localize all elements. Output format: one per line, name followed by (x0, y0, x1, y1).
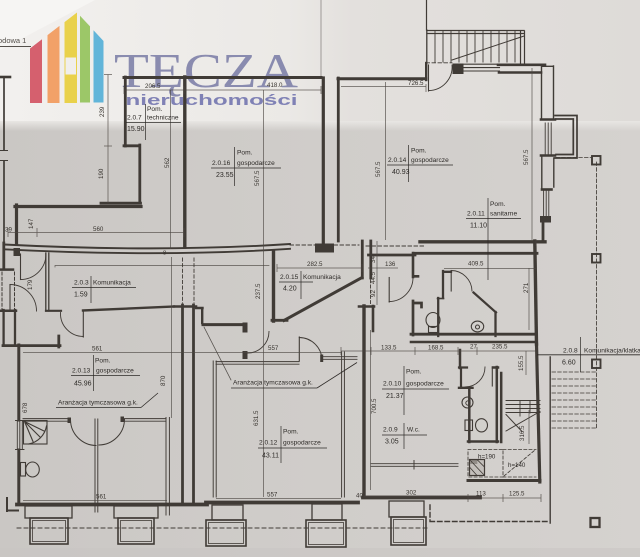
svg-text:Pom.: Pom. (283, 429, 299, 436)
svg-text:92: 92 (370, 290, 377, 297)
svg-text:2.0.3: 2.0.3 (74, 280, 89, 287)
svg-text:2.0.10: 2.0.10 (383, 381, 402, 388)
svg-text:567.5: 567.5 (375, 161, 382, 177)
svg-text:179: 179 (27, 279, 34, 290)
svg-text:odowa 1: odowa 1 (0, 36, 26, 45)
svg-text:2.0.9: 2.0.9 (383, 427, 398, 434)
svg-text:237.5: 237.5 (255, 283, 262, 299)
svg-text:409.5: 409.5 (468, 261, 484, 268)
svg-text:155.5: 155.5 (518, 355, 525, 371)
svg-text:Aranżacja tymczasowa g.k.: Aranżacja tymczasowa g.k. (58, 400, 138, 407)
svg-text:2.0.15: 2.0.15 (280, 274, 299, 281)
svg-text:190: 190 (98, 168, 105, 179)
svg-text:133.5: 133.5 (381, 345, 397, 352)
svg-text:techniczne: techniczne (147, 115, 179, 122)
svg-text:136: 136 (385, 261, 396, 268)
svg-text:557: 557 (268, 345, 279, 352)
svg-text:40.93: 40.93 (392, 169, 410, 176)
svg-text:147: 147 (28, 218, 35, 229)
svg-text:8: 8 (163, 251, 166, 257)
svg-text:11.10: 11.10 (470, 223, 487, 230)
svg-text:561: 561 (96, 494, 107, 501)
svg-text:44.5: 44.5 (370, 271, 377, 284)
svg-text:560: 560 (93, 226, 104, 233)
svg-text:2.0.14: 2.0.14 (388, 157, 407, 164)
svg-text:271: 271 (523, 282, 530, 293)
svg-text:45.96: 45.96 (74, 381, 92, 388)
svg-text:2.0.7: 2.0.7 (127, 115, 142, 122)
svg-text:316.5: 316.5 (519, 425, 526, 441)
svg-text:302: 302 (406, 490, 417, 497)
svg-text:239: 239 (99, 106, 106, 117)
svg-text:113: 113 (476, 491, 486, 498)
svg-text:W.c.: W.c. (407, 427, 420, 434)
svg-text:168.5: 168.5 (428, 345, 444, 352)
svg-text:3.05: 3.05 (385, 439, 399, 446)
svg-text:567.5: 567.5 (523, 149, 530, 165)
svg-text:gospodarcze: gospodarcze (406, 381, 444, 388)
svg-text:2.0.11: 2.0.11 (467, 211, 485, 218)
svg-text:700.5: 700.5 (371, 398, 378, 414)
svg-text:gospodarcze: gospodarcze (283, 440, 321, 447)
svg-text:gospodarcze: gospodarcze (96, 368, 134, 375)
svg-text:Komunikacja/klatka: Komunikacja/klatka (584, 348, 640, 355)
svg-text:Pom.: Pom. (490, 201, 506, 208)
svg-text:561: 561 (92, 346, 103, 353)
svg-text:gospodarcze: gospodarcze (411, 157, 449, 164)
svg-text:40: 40 (356, 493, 363, 500)
svg-text:206.5: 206.5 (145, 83, 161, 90)
svg-text:Pom.: Pom. (411, 148, 427, 155)
svg-text:567.5: 567.5 (254, 170, 261, 186)
svg-text:Komunikacja: Komunikacja (303, 274, 341, 281)
svg-text:Pom.: Pom. (95, 358, 111, 365)
svg-text:h=190: h=190 (478, 454, 496, 461)
svg-text:23.55: 23.55 (216, 172, 234, 179)
svg-text:1.59: 1.59 (74, 292, 88, 299)
svg-text:562: 562 (164, 157, 171, 168)
svg-text:39: 39 (5, 227, 12, 234)
svg-text:h=140: h=140 (508, 462, 526, 469)
svg-text:726.5: 726.5 (408, 80, 424, 87)
svg-text:43.11: 43.11 (262, 453, 279, 460)
svg-text:418.0: 418.0 (267, 82, 283, 89)
svg-text:631.5: 631.5 (253, 410, 260, 426)
svg-text:2.0.16: 2.0.16 (212, 160, 231, 167)
svg-text:2.0.12: 2.0.12 (259, 440, 278, 447)
svg-text:34: 34 (370, 256, 377, 263)
svg-text:2.0.8: 2.0.8 (563, 348, 578, 355)
svg-text:Komunikacja: Komunikacja (93, 280, 131, 287)
svg-text:125.5: 125.5 (509, 491, 525, 498)
svg-text:Pom.: Pom. (237, 150, 253, 157)
svg-text:27: 27 (470, 344, 477, 351)
svg-text:gospodarcze: gospodarcze (237, 160, 275, 167)
svg-text:Pom.: Pom. (406, 369, 422, 376)
svg-text:Aranżacja tymczasowa g.k.: Aranżacja tymczasowa g.k. (233, 380, 313, 387)
svg-text:678: 678 (22, 402, 29, 413)
svg-text:6.60: 6.60 (562, 360, 576, 367)
svg-text:4.20: 4.20 (283, 286, 297, 293)
svg-text:Pom.: Pom. (147, 106, 163, 113)
svg-text:21.37: 21.37 (386, 393, 404, 400)
svg-text:870: 870 (160, 375, 167, 386)
svg-text:282.5: 282.5 (307, 261, 323, 268)
svg-text:2.0.13: 2.0.13 (72, 368, 91, 375)
svg-text:15.90: 15.90 (127, 126, 145, 133)
svg-text:557: 557 (267, 492, 278, 499)
svg-text:sanitarne: sanitarne (490, 211, 517, 218)
svg-text:235.5: 235.5 (492, 344, 508, 351)
